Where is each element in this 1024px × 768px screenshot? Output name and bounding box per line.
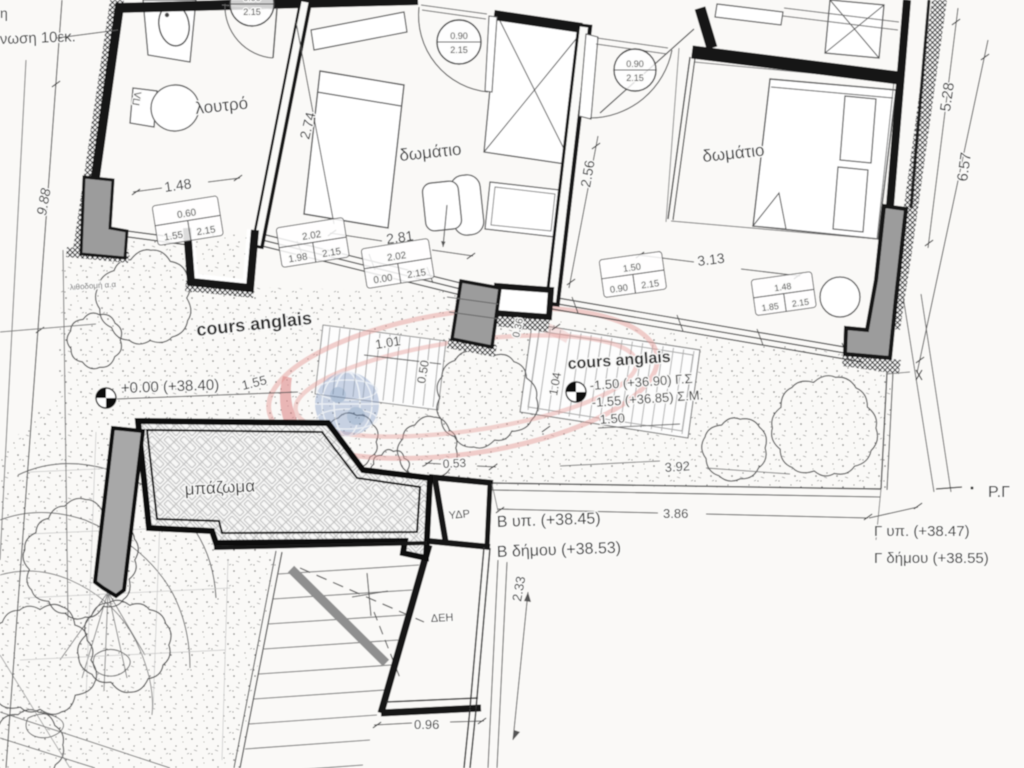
svg-text:+0.00 (+38.40): +0.00 (+38.40)	[121, 377, 220, 397]
svg-text:0.90: 0.90	[243, 0, 261, 3]
svg-text:ΥΔΡ: ΥΔΡ	[448, 508, 470, 522]
svg-text:Ρ.Γ: Ρ.Γ	[988, 484, 1010, 501]
svg-text:Β υπ. (+38.45): Β υπ. (+38.45)	[497, 510, 601, 531]
svg-text:0.90: 0.90	[626, 59, 644, 69]
svg-text:0.96: 0.96	[414, 717, 439, 732]
svg-text:2.15: 2.15	[450, 45, 468, 55]
svg-text:2.15: 2.15	[626, 73, 644, 83]
svg-text:η: η	[0, 5, 8, 21]
svg-text:3.92: 3.92	[664, 458, 690, 475]
svg-text:Γ δήμου (+38.55): Γ δήμου (+38.55)	[874, 550, 989, 567]
svg-text:μπάζωμα: μπάζωμα	[184, 476, 255, 499]
svg-text:0.90: 0.90	[450, 31, 468, 41]
svg-text:3.13: 3.13	[696, 250, 725, 269]
svg-text:νωση 10εκ.: νωση 10εκ.	[0, 28, 76, 48]
svg-text:0.53: 0.53	[442, 456, 466, 471]
svg-text:3.86: 3.86	[663, 506, 688, 521]
svg-text:Γ υπ. (+38.47): Γ υπ. (+38.47)	[874, 523, 970, 540]
svg-text:1.50: 1.50	[599, 410, 625, 427]
svg-text:ΔΕΗ: ΔΕΗ	[431, 612, 454, 625]
svg-text:2.15: 2.15	[243, 7, 261, 17]
